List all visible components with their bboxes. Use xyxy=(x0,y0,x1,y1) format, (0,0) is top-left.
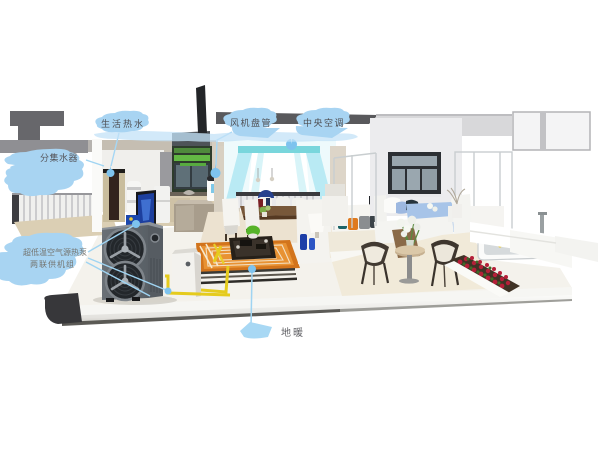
svg-text:中央空调: 中央空调 xyxy=(303,117,345,128)
svg-text:地暖: 地暖 xyxy=(281,326,305,339)
svg-text:分集水器: 分集水器 xyxy=(40,152,78,163)
svg-text:两联供机组: 两联供机组 xyxy=(30,259,75,269)
svg-text:超低温空气源热泵: 超低温空气源热泵 xyxy=(23,247,87,257)
svg-text:风机盘管: 风机盘管 xyxy=(230,117,272,128)
svg-text:生活热水: 生活热水 xyxy=(101,118,145,129)
